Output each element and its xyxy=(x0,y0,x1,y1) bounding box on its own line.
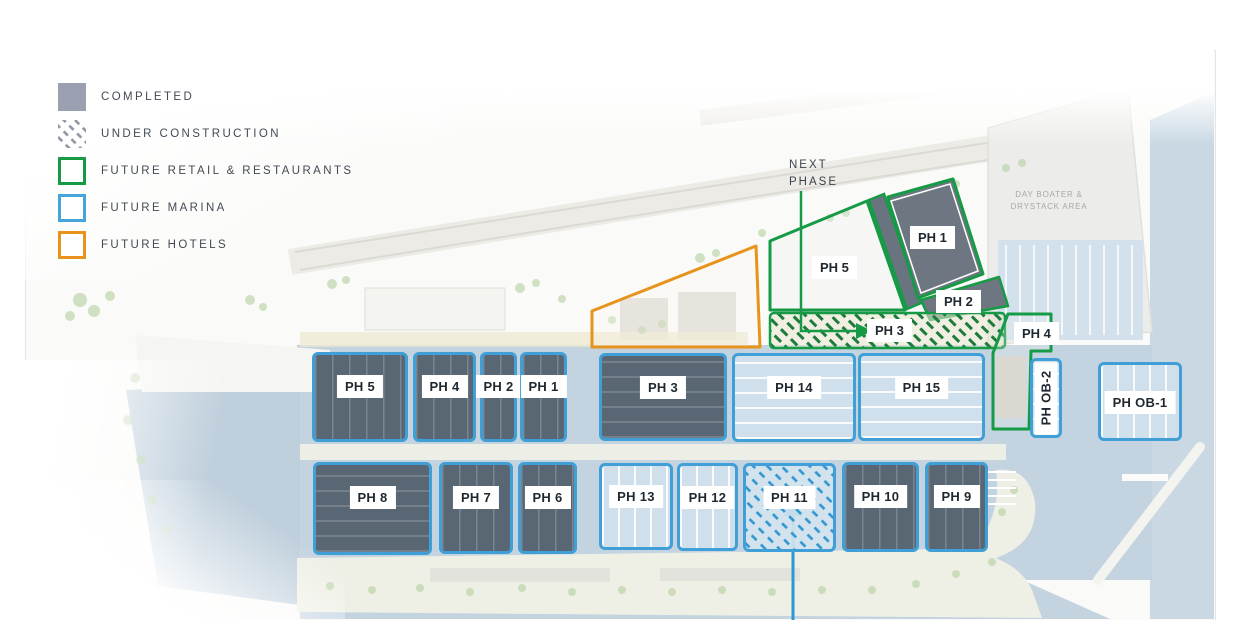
phase-label: PH 13 xyxy=(609,485,663,508)
legend-label: UNDER CONSTRUCTION xyxy=(101,128,281,140)
legend-label: FUTURE RETAIL & RESTAURANTS xyxy=(101,165,353,177)
phase-area-marina-ph10: PH 10 xyxy=(842,462,919,552)
phase-area-marina-ph14: PH 14 xyxy=(732,353,856,442)
legend-item-completed: COMPLETED xyxy=(58,83,353,111)
orange-outline-swatch-icon xyxy=(58,231,86,259)
phase-label: PH 8 xyxy=(349,486,395,509)
phase-label: PH 10 xyxy=(854,485,908,508)
phase-label-upland-ph1: PH 1 xyxy=(910,226,955,249)
phase-area-marina-ph15: PH 15 xyxy=(858,353,985,441)
phase-label: PH 7 xyxy=(453,486,499,509)
phase-area-marina-ph-ob1: PH OB-1 xyxy=(1098,362,1182,441)
phase-area-marina-ph1: PH 1 xyxy=(520,352,567,442)
phase-label: PH 15 xyxy=(895,376,949,399)
marina-site-plan-page: PH 5 PH 1 PH 2 PH 3 PH 4 PH 5 PH 4 PH 2 … xyxy=(0,0,1240,620)
phase-area-marina-ph-ob2: PH OB-2 xyxy=(1030,358,1062,438)
phase-label-upland-ph2: PH 2 xyxy=(936,290,981,313)
phase-label-upland-ph4: PH 4 xyxy=(1014,322,1059,345)
phase-label: PH 5 xyxy=(337,375,383,398)
phase-label: PH 14 xyxy=(767,376,821,399)
phase-label: PH 6 xyxy=(524,486,570,509)
phase-label: PH 12 xyxy=(681,486,735,509)
phase-label: PH 3 xyxy=(640,376,686,399)
phase-area-marina-ph6: PH 6 xyxy=(518,462,577,554)
phase-area-marina-ph11: PH 11 xyxy=(743,463,836,552)
phase-area-marina-ph7: PH 7 xyxy=(439,462,513,554)
legend-item-future-marina: FUTURE MARINA xyxy=(58,194,353,222)
phase-area-marina-ph12: PH 12 xyxy=(677,463,738,551)
phase-area-marina-ph4: PH 4 xyxy=(413,352,476,442)
phase-label: PH 11 xyxy=(763,486,816,509)
completed-swatch-icon xyxy=(58,83,86,111)
legend-item-future-retail: FUTURE RETAIL & RESTAURANTS xyxy=(58,157,353,185)
legend: COMPLETED UNDER CONSTRUCTION FUTURE RETA… xyxy=(58,83,353,268)
phase-label-upland-ph3: PH 3 xyxy=(867,319,912,342)
hatch-swatch-icon xyxy=(58,120,86,148)
phase-label-upland-ph5: PH 5 xyxy=(812,256,857,279)
phase-label: PH OB-1 xyxy=(1105,391,1176,414)
phase-label: PH 2 xyxy=(475,375,521,398)
phase-area-marina-ph8: PH 8 xyxy=(313,462,432,555)
phase-label: PH OB-2 xyxy=(1035,363,1058,434)
phase-area-marina-ph5: PH 5 xyxy=(312,352,408,442)
phase-area-marina-ph2: PH 2 xyxy=(480,352,517,442)
phase-area-marina-ph13: PH 13 xyxy=(599,463,673,550)
legend-label: COMPLETED xyxy=(101,91,194,103)
next-phase-annotation: NEXT PHASE xyxy=(789,157,853,190)
phase-label: PH 1 xyxy=(520,375,566,398)
phase-area-marina-ph3: PH 3 xyxy=(599,353,727,441)
phase-label: PH 9 xyxy=(933,485,979,508)
day-boater-drystack-label: DAY BOATER & DRYSTACK AREA xyxy=(993,189,1105,212)
legend-label: FUTURE MARINA xyxy=(101,202,227,214)
legend-item-future-hotels: FUTURE HOTELS xyxy=(58,231,353,259)
phase-label: PH 4 xyxy=(421,375,467,398)
phase-area-marina-ph9: PH 9 xyxy=(925,462,988,552)
blue-outline-swatch-icon xyxy=(58,194,86,222)
legend-label: FUTURE HOTELS xyxy=(101,239,228,251)
legend-item-under-construction: UNDER CONSTRUCTION xyxy=(58,120,353,148)
green-outline-swatch-icon xyxy=(58,157,86,185)
